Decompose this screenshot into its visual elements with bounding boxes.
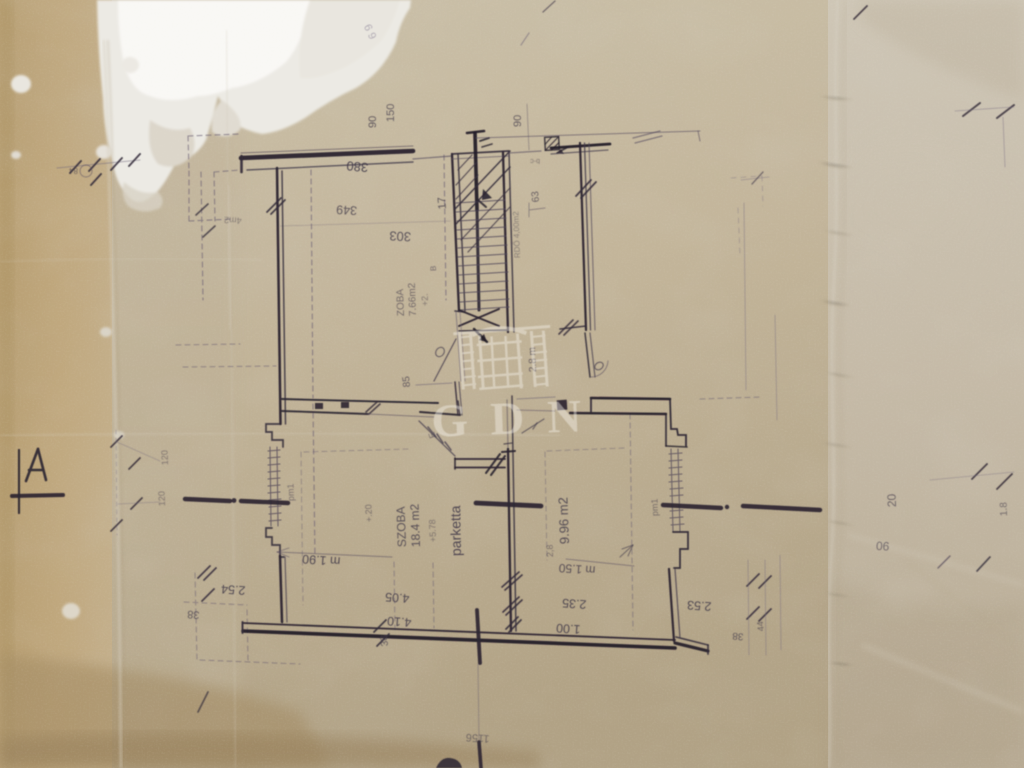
svg-text:b-c: b-c xyxy=(530,157,540,164)
svg-text:m 1.50: m 1.50 xyxy=(558,561,596,578)
svg-text:303: 303 xyxy=(389,228,411,244)
svg-text:4m2: 4m2 xyxy=(224,215,242,226)
svg-text:9.96 m2: 9.96 m2 xyxy=(555,497,572,544)
svg-text:20: 20 xyxy=(885,493,899,507)
svg-text:38: 38 xyxy=(187,608,200,621)
svg-text:90: 90 xyxy=(367,116,379,128)
svg-text:pm1: pm1 xyxy=(649,498,660,516)
svg-text:63: 63 xyxy=(530,190,542,202)
svg-text:4.05: 4.05 xyxy=(385,590,410,606)
svg-text:SZOBA: SZOBA xyxy=(394,506,409,547)
svg-text:38: 38 xyxy=(379,634,391,647)
svg-text:150: 150 xyxy=(385,104,397,122)
svg-text:N: N xyxy=(546,390,582,443)
svg-text:+5.78: +5.78 xyxy=(427,519,438,542)
svg-text:17: 17 xyxy=(436,197,449,210)
svg-text:1156: 1156 xyxy=(465,731,489,745)
svg-text:44: 44 xyxy=(755,621,766,632)
svg-text:2.53: 2.53 xyxy=(687,598,712,614)
svg-text:120: 120 xyxy=(156,491,167,506)
svg-text:38: 38 xyxy=(732,630,744,642)
svg-text:G: G xyxy=(430,394,468,447)
svg-text:ZOBA: ZOBA xyxy=(395,288,407,316)
svg-text:1.00: 1.00 xyxy=(556,621,581,637)
svg-text:+.20: +.20 xyxy=(363,504,374,522)
svg-text:380: 380 xyxy=(346,158,369,175)
svg-text:120: 120 xyxy=(159,450,170,465)
svg-text:85: 85 xyxy=(401,375,413,387)
svg-text:RDŐ 4,00m2: RDŐ 4,00m2 xyxy=(511,211,522,259)
svg-text:B: B xyxy=(429,266,438,272)
svg-text:pm1: pm1 xyxy=(285,483,296,501)
svg-text:2.54: 2.54 xyxy=(221,582,246,598)
svg-text:84: 84 xyxy=(69,166,78,175)
svg-text:m 1.90: m 1.90 xyxy=(302,552,341,569)
svg-text:parketta: parketta xyxy=(447,505,464,556)
svg-text:18.4 m2: 18.4 m2 xyxy=(407,503,423,547)
svg-text:90: 90 xyxy=(512,115,524,127)
svg-text:D: D xyxy=(489,392,525,445)
svg-text:90: 90 xyxy=(875,538,890,553)
svg-text:1.8: 1.8 xyxy=(999,502,1010,517)
svg-text:7.66m2: 7.66m2 xyxy=(407,282,419,316)
svg-text:+2.: +2. xyxy=(420,293,430,306)
svg-text:4.10: 4.10 xyxy=(387,614,412,630)
svg-text:2,8: 2,8 xyxy=(545,544,555,557)
svg-text:349: 349 xyxy=(336,202,358,217)
svg-text:2.35: 2.35 xyxy=(562,596,587,612)
